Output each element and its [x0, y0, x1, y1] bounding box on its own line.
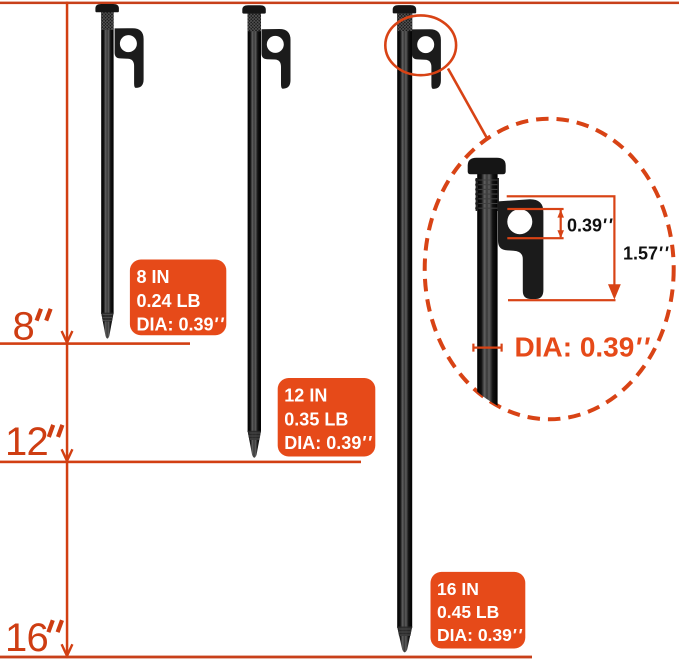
- svg-text:0.35 LB: 0.35 LB: [284, 409, 348, 429]
- svg-text:DIA: 0.39'': DIA: 0.39'': [437, 625, 523, 645]
- svg-text:0.24 LB: 0.24 LB: [137, 291, 201, 311]
- svg-text:12: 12: [5, 420, 48, 464]
- svg-text:16 IN: 16 IN: [437, 579, 479, 599]
- svg-text:DIA: 0.39'': DIA: 0.39'': [515, 331, 651, 362]
- svg-text:0.45 LB: 0.45 LB: [437, 602, 499, 622]
- svg-text:DIA: 0.39'': DIA: 0.39'': [284, 433, 372, 453]
- svg-text:1.57'': 1.57'': [623, 243, 669, 263]
- svg-text:0.39'': 0.39'': [567, 216, 613, 236]
- svg-text:DIA: 0.39'': DIA: 0.39'': [137, 314, 225, 334]
- svg-text:16: 16: [5, 616, 48, 660]
- svg-text:8 IN: 8 IN: [137, 267, 170, 287]
- svg-text:12 IN: 12 IN: [284, 386, 327, 406]
- svg-text:8: 8: [13, 305, 34, 349]
